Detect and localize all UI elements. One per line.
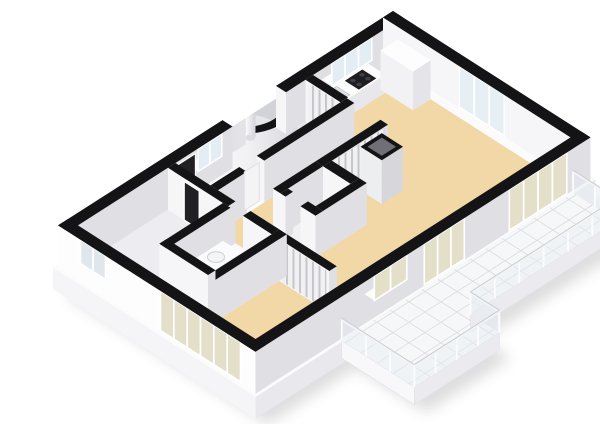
- burner: [365, 77, 371, 81]
- burner: [359, 73, 365, 77]
- floorplan-3d-viewport[interactable]: [0, 0, 600, 424]
- burner: [356, 83, 362, 87]
- floorplan-3d-render: [0, 0, 600, 424]
- wall-wc-south-a: [281, 189, 294, 239]
- vanity-basin: [208, 252, 225, 263]
- burner: [350, 79, 356, 83]
